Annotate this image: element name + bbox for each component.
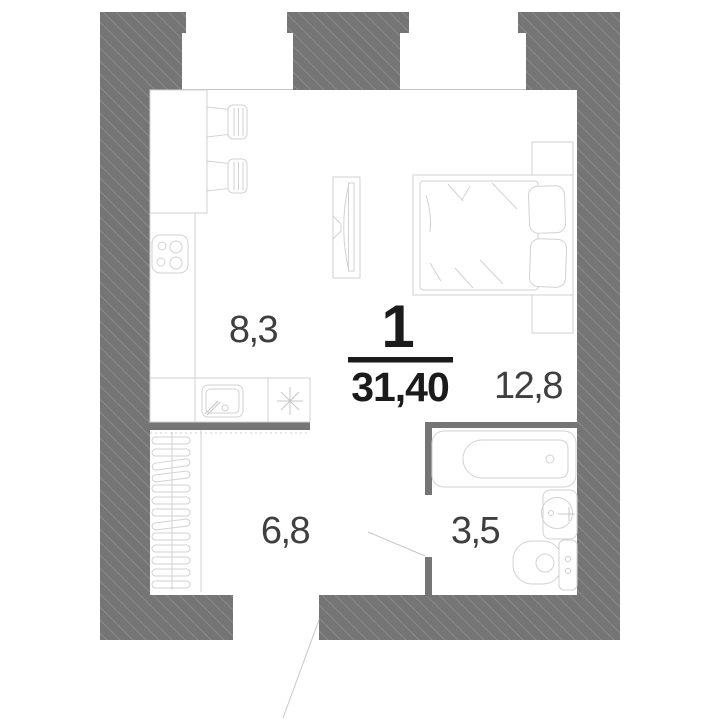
total-area-label: 31,40 — [351, 364, 449, 410]
dining-table-icon — [150, 90, 207, 213]
pillow-icon — [529, 238, 567, 287]
kitchen-zone — [150, 90, 310, 422]
toilet-bowl — [513, 541, 562, 584]
tv-icon — [333, 177, 360, 278]
kitchen-sink-icon — [202, 385, 243, 417]
floor-plan-page: 8,3 12,8 6,8 3,5 1 31,40 — [0, 0, 720, 720]
hanger-rack-icon — [152, 430, 201, 592]
summary-divider-line — [348, 357, 453, 363]
window-1-niche — [182, 33, 293, 90]
wall-left — [100, 12, 150, 640]
bathroom-top-wall — [425, 422, 577, 428]
toilet-icon — [513, 540, 577, 590]
window-1-outer-opening — [186, 11, 287, 33]
chair-icon — [207, 159, 247, 193]
bathtub-icon — [432, 431, 576, 487]
entrance-opening — [233, 595, 319, 640]
bathroom-left-wall-lower — [425, 557, 432, 596]
washbasin-icon — [542, 490, 578, 539]
rooms-count-label: 1 — [381, 293, 414, 360]
bed-icon — [413, 175, 573, 295]
window-2-outer-opening — [409, 11, 518, 33]
living-room-zone — [333, 142, 573, 333]
floor-plan-canvas: 8,3 12,8 6,8 3,5 1 31,40 — [0, 0, 720, 720]
bathroom-left-wall-upper — [425, 422, 432, 495]
apartment-summary: 1 31,40 — [348, 293, 453, 410]
bathroom-door-line — [368, 532, 425, 556]
kitchen-area-label: 8,3 — [229, 309, 278, 351]
kitchen-hallway-wall — [150, 422, 310, 430]
chair-icon — [207, 105, 247, 139]
window-2-niche — [400, 33, 526, 90]
toilet-tank — [559, 540, 577, 590]
pillow-icon — [528, 185, 566, 233]
wall-bottom-right — [319, 595, 620, 640]
wall-top — [100, 12, 620, 90]
bathroom-area-label: 3,5 — [451, 510, 500, 552]
wall-right — [577, 12, 620, 640]
wall-bottom-left — [100, 595, 233, 640]
stove-icon — [152, 235, 188, 273]
hallway-area-label: 6,8 — [261, 510, 310, 552]
living-area-label: 12,8 — [494, 365, 562, 407]
